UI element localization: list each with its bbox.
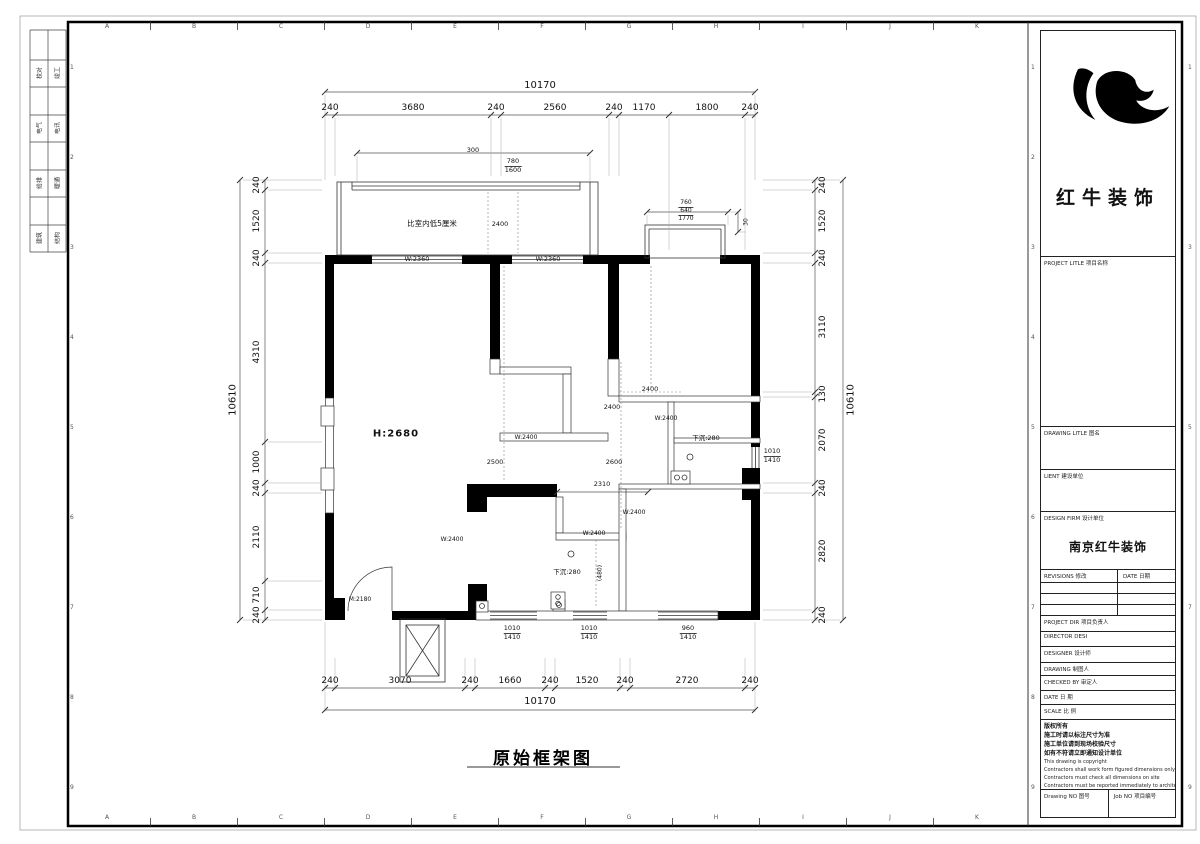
dim-right: 240 — [818, 606, 828, 623]
sheet-frame — [20, 16, 1196, 830]
dim-right: 1520 — [818, 210, 828, 233]
grid-letter-top: F — [540, 23, 543, 30]
grid-letter-top: I — [802, 23, 804, 30]
dim-top: 3680 — [402, 103, 425, 113]
signoff-cell: 给排 — [35, 177, 44, 189]
dim-top: 2560 — [544, 103, 567, 113]
dim-balcony-window: 780 1600 — [505, 158, 522, 174]
dim-bottom: 240 — [461, 676, 478, 686]
grid-letter-top: B — [192, 23, 196, 30]
window-dim: 1010 1410 — [504, 625, 521, 641]
grid-letter-top: D — [366, 23, 371, 30]
revisions-label: REVISIONS 修改 — [1041, 570, 1175, 582]
dim-right: 240 — [818, 249, 828, 266]
signoff-cell: 暖通 — [53, 177, 62, 189]
grid-number-right: 2 — [1031, 154, 1035, 161]
drawing-linework — [0, 0, 1200, 844]
window-dim: 960 1410 — [680, 625, 697, 641]
drawing-title-section: DRAWING LITLE 图名 — [1041, 426, 1175, 469]
grid-number-right: 6 — [1031, 514, 1035, 521]
dim-right: 3110 — [818, 316, 828, 339]
title-block: 红牛装饰 PROJECT LITLE 项目名称 DRAWING LITLE 图名… — [1040, 30, 1176, 818]
dim-right: 130 — [818, 385, 828, 402]
window-dim: 1010 1410 — [581, 625, 598, 641]
window-label: W:2360 — [405, 255, 430, 263]
door-label: W:2400 — [583, 530, 606, 537]
project-title-label: PROJECT LITLE 项目名称 — [1041, 257, 1175, 269]
dim-bottom: 240 — [741, 676, 758, 686]
signoff-cell: 竣工 — [53, 67, 62, 79]
window-dim: 1010 1410 — [764, 448, 781, 464]
drawing-no-divider — [1108, 790, 1109, 817]
door-label: W:2400 — [441, 536, 464, 543]
grid-letter-bottom: J — [889, 814, 891, 821]
signoff-cell: 结构 — [53, 232, 62, 244]
drawing-title: 原始框架图 — [493, 744, 593, 769]
dim-top-total: 10170 — [524, 80, 556, 91]
grid-letter-top: G — [627, 23, 632, 30]
elevator-and-door — [348, 567, 445, 682]
grid-letter-bottom: D — [366, 814, 371, 821]
dim-top: 1800 — [696, 103, 719, 113]
dim-bottom: 3070 — [389, 676, 412, 686]
dim-bottom: 240 — [321, 676, 338, 686]
client-section: LIENT 建设单位 — [1041, 469, 1175, 511]
design-firm-section: DESIGN FIRM 设计单位 南京红牛装饰 — [1041, 511, 1175, 569]
grid-number-left: 1 — [70, 64, 74, 71]
design-firm-label: DESIGN FIRM 设计单位 — [1041, 512, 1175, 524]
dim-left: 1520 — [252, 210, 262, 233]
grid-number-left: 5 — [70, 424, 74, 431]
grid-number-left: 4 — [70, 334, 74, 341]
dim-right: 240 — [818, 479, 828, 496]
dim-left: 240 — [252, 249, 262, 266]
balcony-depth-dim: 2400 — [492, 220, 509, 228]
dim-bottom: 1520 — [576, 676, 599, 686]
dim-left: 1000 — [252, 451, 262, 474]
dim-left: 710 — [252, 586, 262, 603]
grid-letter-top: C — [279, 23, 283, 30]
grid-number-right: 1 — [1031, 64, 1035, 71]
grid-number-left: 8 — [70, 694, 74, 701]
grid-letter-bottom: A — [105, 814, 109, 821]
grid-number-right: 7 — [1031, 604, 1035, 611]
dim-top: 240 — [605, 103, 622, 113]
grid-letter-bottom: I — [802, 814, 804, 821]
grid-number-edge: 5 — [1188, 424, 1192, 431]
date-row: DATE 日 期 — [1041, 690, 1175, 704]
dim-bottom: 1660 — [499, 676, 522, 686]
grid-letter-top: J — [889, 23, 891, 30]
dim-bottom: 240 — [616, 676, 633, 686]
design-firm-value: 南京红牛装饰 — [1041, 538, 1175, 555]
dim-top: 240 — [321, 103, 338, 113]
brand-name: 红牛装饰 — [1041, 183, 1175, 210]
cad-sheet: A B C D E F G H I J K A B C D E F G H I … — [0, 0, 1200, 844]
grid-number-left: 6 — [70, 514, 74, 521]
designer-row: DESIGNER 设计师 — [1041, 646, 1175, 662]
grid-letter-bottom: C — [279, 814, 283, 821]
grid-number-right: 9 — [1031, 784, 1035, 791]
dim-top: 240 — [741, 103, 758, 113]
bull-logo-icon — [1041, 49, 1175, 179]
drawing-row: DRAWING 制图人 — [1041, 662, 1175, 675]
grid-letter-bottom: K — [975, 814, 979, 821]
dim-bottom-total: 10170 — [524, 696, 556, 707]
dim-right: 2820 — [818, 540, 828, 563]
interior-dim: 2600 — [606, 458, 623, 466]
grid-letter-bottom: F — [540, 814, 543, 821]
grid-letter-bottom: H — [714, 814, 719, 821]
ceiling-height-label: H:2680 — [373, 429, 419, 440]
project-title-section: PROJECT LITLE 项目名称 — [1041, 256, 1175, 426]
interior-dim: 2500 — [487, 458, 504, 466]
signoff-cell: 电讯 — [53, 122, 62, 134]
notes-section: 版权所有 施工时请以标注尺寸为准 施工单位请到现场校验尺寸 如有不符请立即通知设… — [1041, 720, 1175, 789]
dim-right: 2070 — [818, 429, 828, 452]
sunken-label: 下沉:280 — [553, 566, 581, 576]
grid-number-edge: 3 — [1188, 244, 1192, 251]
dim-left: 2110 — [252, 526, 262, 549]
dim-bottom: 240 — [541, 676, 558, 686]
window-label: W:2360 — [536, 255, 561, 263]
dim-left: 240 — [252, 606, 262, 623]
grid-letter-top: E — [453, 23, 457, 30]
sunken-label: 下沉:280 — [692, 432, 720, 442]
interior-dim: 2400 — [642, 385, 659, 393]
signoff-cell: 建筑 — [35, 232, 44, 244]
dim-bay-side: 30 — [743, 218, 750, 226]
dim-top: 240 — [487, 103, 504, 113]
dim-right: 240 — [818, 176, 828, 193]
director-row: DIRECTOR DESI — [1041, 631, 1175, 646]
project-dir-row: PROJECT DIR 项目负责人 — [1041, 615, 1175, 631]
checked-row: CHECKED BY 审定人 — [1041, 675, 1175, 690]
grid-number-left: 3 — [70, 244, 74, 251]
revisions-section: REVISIONS 修改 DATE 日期 — [1041, 569, 1175, 615]
grid-number-left: 9 — [70, 784, 74, 791]
dim-left-total: 10610 — [228, 384, 239, 416]
signoff-cell: 校对 — [35, 67, 44, 79]
balcony-note: 比室内低5厘米 — [407, 218, 457, 229]
dim-bottom: 2720 — [676, 676, 699, 686]
door-label: W:2400 — [515, 434, 538, 441]
dim-left: 240 — [252, 176, 262, 193]
date-col-label: DATE 日期 — [1120, 570, 1153, 582]
door-label: W:2400 — [655, 415, 678, 422]
interior-dim: 2310 — [594, 480, 611, 488]
grid-number-right: 4 — [1031, 334, 1035, 341]
grid-number-right: 8 — [1031, 694, 1035, 701]
signoff-cell: 电气 — [35, 122, 44, 134]
grid-number-edge: 1 — [1188, 64, 1192, 71]
scale-row: SCALE 比 例 — [1041, 704, 1175, 719]
job-no-label: Job NO 项目编号 — [1111, 790, 1159, 802]
grid-number-edge: 9 — [1188, 784, 1192, 791]
dim-bay-window: 760 640 1770 — [678, 200, 693, 222]
grid-letter-top: H — [714, 23, 719, 30]
drawing-no-section: Drawing NO 图号 Job NO 项目编号 — [1041, 789, 1175, 817]
logo-section: 红牛装饰 — [1041, 31, 1175, 256]
dim-top: 1170 — [633, 103, 656, 113]
interior-dim: (480) — [597, 565, 604, 581]
grid-letter-bottom: B — [192, 814, 196, 821]
client-label: LIENT 建设单位 — [1041, 470, 1175, 482]
grid-letter-top: A — [105, 23, 109, 30]
grid-number-right: 3 — [1031, 244, 1035, 251]
grid-number-left: 7 — [70, 604, 74, 611]
interior-dim: 2400 — [604, 403, 621, 411]
dim-right-total: 10610 — [846, 384, 857, 416]
drawing-title-label: DRAWING LITLE 图名 — [1041, 427, 1175, 439]
dim-left: 240 — [252, 479, 262, 496]
grid-letter-top: K — [975, 23, 979, 30]
grid-letter-bottom: G — [627, 814, 632, 821]
dim-left: 4310 — [252, 341, 262, 364]
grid-letter-bottom: E — [453, 814, 457, 821]
grid-number-edge: 7 — [1188, 604, 1192, 611]
grid-number-right: 5 — [1031, 424, 1035, 431]
door-label: W:2400 — [623, 509, 646, 516]
dim-balcony-width: 300 — [467, 146, 479, 154]
entry-door-label: M:2180 — [349, 596, 371, 603]
grid-number-left: 2 — [70, 154, 74, 161]
